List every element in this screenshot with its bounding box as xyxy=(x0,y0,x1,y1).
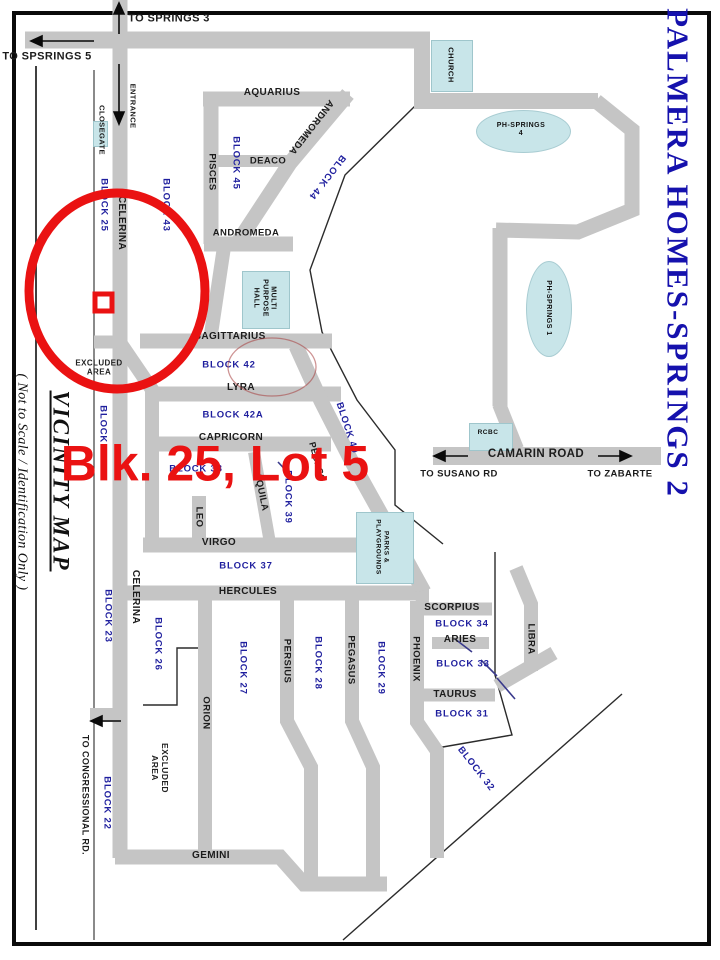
highlight-circle xyxy=(29,193,205,389)
red-annotations-layer xyxy=(0,0,720,960)
lot-marker xyxy=(95,294,112,311)
sketch-ellipse-block-42 xyxy=(228,338,316,396)
vicinity-map-canvas: TO SPRINGS 3TO SPSRINGS 5ENTRANCECLOSEGA… xyxy=(0,0,720,960)
